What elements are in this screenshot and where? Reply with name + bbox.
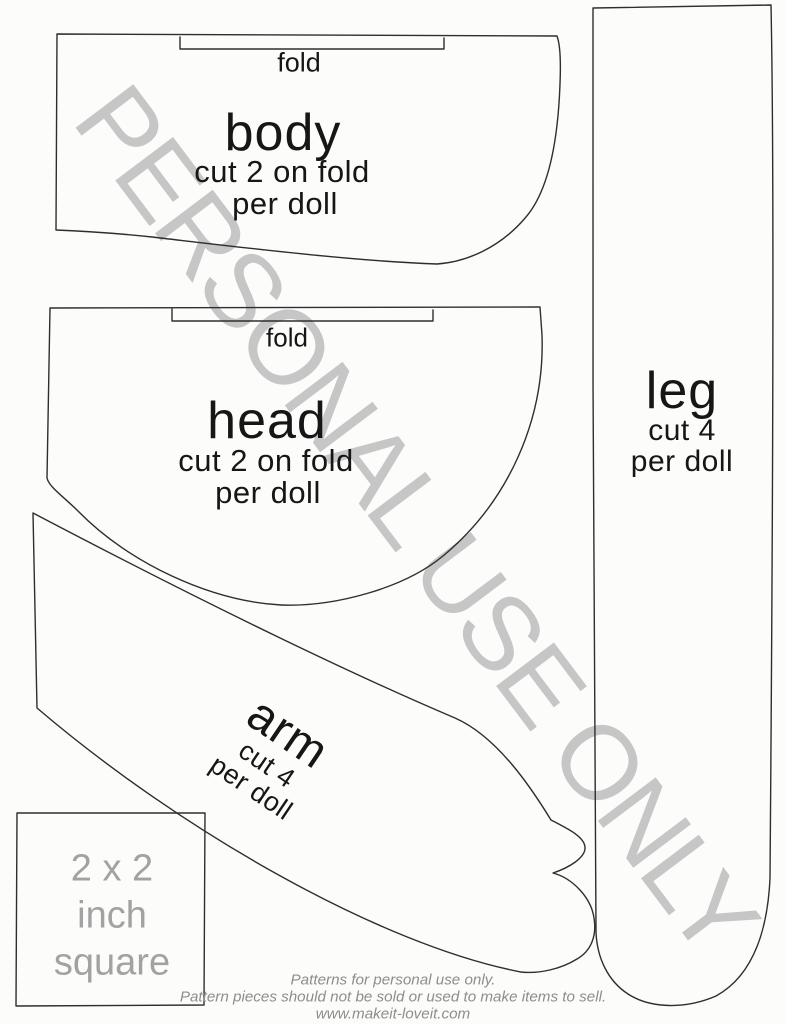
head-fold-notch	[172, 309, 433, 321]
leg-per-doll-instruction: per doll	[631, 446, 733, 477]
footer-line-personal-use: Patterns for personal use only.	[291, 972, 496, 989]
leg-outline	[593, 5, 773, 1006]
footer-notice: Patterns for personal use only. Pattern …	[180, 972, 606, 1023]
body-cut-instruction: cut 2 on fold	[194, 154, 369, 190]
body-fold-label: fold	[277, 48, 321, 79]
leg-piece-name: leg	[646, 367, 718, 415]
footer-line-no-resale: Pattern pieces should not be sold or use…	[180, 989, 606, 1006]
footer-website-url: www.makeit-loveit.com	[316, 1006, 470, 1023]
scale-square-label-group: 2 x 2 inch square	[54, 846, 170, 987]
pattern-page: PERSONAL USE ONLY fold body cut 2 on fol…	[0, 0, 786, 1024]
head-piece-name: head	[207, 391, 327, 451]
scale-square-size: 2 x 2	[71, 846, 153, 893]
leg-label-group: leg cut 4 per doll	[631, 367, 733, 477]
leg-cut-instruction: cut 4	[648, 415, 716, 446]
scale-square-unit: inch	[77, 893, 147, 940]
scale-square-word: square	[54, 940, 170, 987]
head-per-doll-instruction: per doll	[215, 475, 321, 511]
head-fold-label: fold	[266, 323, 308, 354]
body-per-doll-instruction: per doll	[232, 186, 338, 222]
head-cut-instruction: cut 2 on fold	[178, 443, 353, 479]
